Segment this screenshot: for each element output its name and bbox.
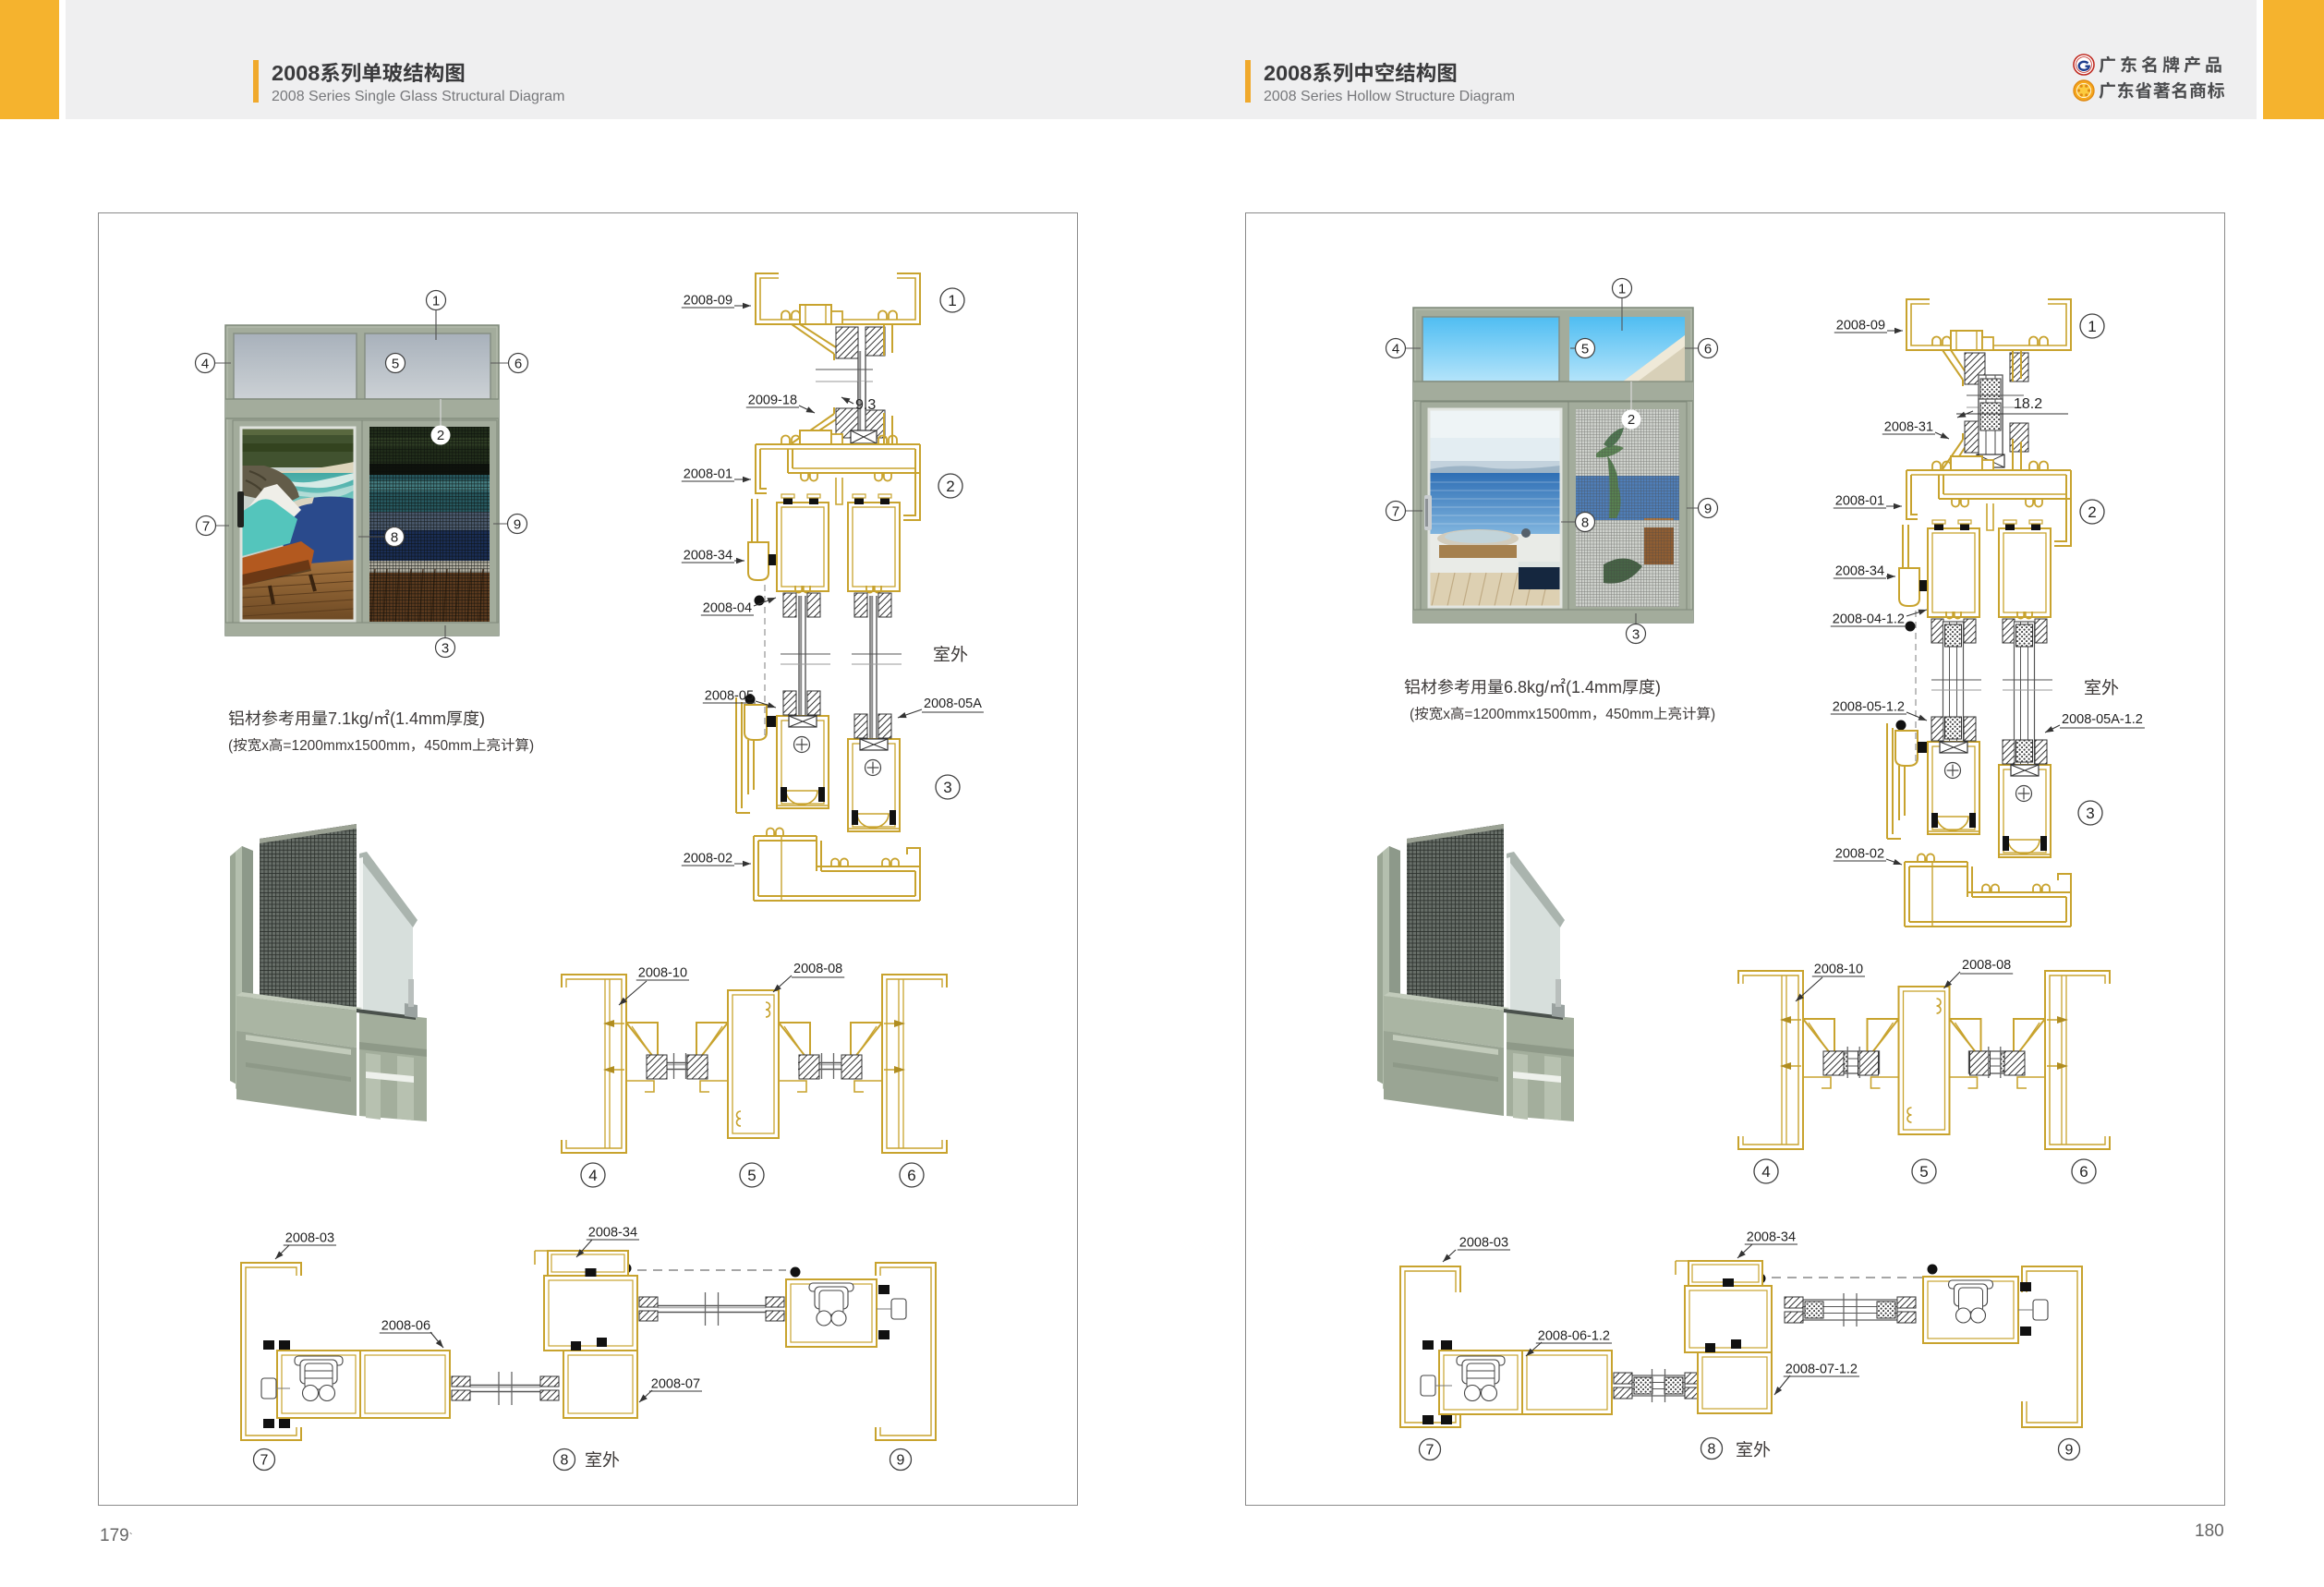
svg-text:): ) (529, 738, 534, 754)
svg-text:6.8kg/: 6.8kg/ (1504, 678, 1549, 697)
svg-text:1: 1 (2088, 318, 2096, 335)
svg-text:2008-34: 2008-34 (684, 549, 732, 563)
svg-text:2008-05-1.2: 2008-05-1.2 (1833, 700, 1905, 715)
svg-text:6: 6 (1704, 341, 1712, 357)
svg-text:450mm: 450mm (424, 738, 472, 754)
svg-text:2008-01: 2008-01 (684, 467, 732, 482)
svg-text:2009-18: 2009-18 (748, 394, 797, 408)
svg-text:2008-02: 2008-02 (1835, 847, 1884, 862)
svg-text:3: 3 (2086, 805, 2094, 822)
svg-text:2008-05: 2008-05 (705, 689, 754, 704)
svg-text:3: 3 (1632, 626, 1640, 642)
svg-text:9: 9 (897, 1453, 905, 1469)
svg-text:2008-10: 2008-10 (638, 966, 687, 981)
svg-text:=1200mmx1500mm: =1200mmx1500mm (1464, 707, 1591, 722)
svg-text:2008: 2008 (272, 61, 320, 85)
svg-text:2: 2 (946, 478, 954, 495)
svg-text:180: 180 (2195, 1521, 2224, 1541)
svg-text:1.4mm: 1.4mm (395, 709, 446, 728)
svg-text:4: 4 (201, 356, 209, 371)
svg-text:=1200mmx1500mm: =1200mmx1500mm (283, 738, 409, 754)
svg-text:2008-09: 2008-09 (1836, 319, 1885, 333)
svg-text:2: 2 (2088, 503, 2096, 521)
svg-text:2008-01: 2008-01 (1835, 494, 1884, 509)
svg-text:): ) (479, 709, 485, 728)
svg-text:): ) (1711, 707, 1715, 722)
svg-text:3: 3 (943, 779, 951, 796)
svg-text:2008-04: 2008-04 (703, 601, 752, 616)
svg-text:6: 6 (2079, 1163, 2088, 1181)
svg-text:7: 7 (1426, 1443, 1434, 1459)
svg-text:2008-07: 2008-07 (651, 1377, 700, 1392)
svg-text:2008-03: 2008-03 (1459, 1236, 1508, 1251)
svg-text:6: 6 (907, 1167, 915, 1184)
svg-text:2008-34: 2008-34 (1835, 564, 1884, 579)
svg-text:(: ( (228, 738, 234, 754)
svg-text:8: 8 (561, 1453, 569, 1469)
svg-text:2008-06-1.2: 2008-06-1.2 (1538, 1329, 1610, 1344)
svg-text:7: 7 (260, 1453, 269, 1469)
svg-text:7.1kg/: 7.1kg/ (328, 709, 373, 728)
svg-text:450mm: 450mm (1605, 707, 1653, 722)
svg-text:7: 7 (202, 518, 210, 534)
svg-text:5: 5 (1581, 341, 1589, 357)
svg-text:2008-08: 2008-08 (1962, 958, 2011, 973)
svg-text:): ) (1655, 678, 1661, 697)
svg-text:5: 5 (1919, 1163, 1928, 1181)
svg-text:1.4mm: 1.4mm (1571, 678, 1622, 697)
svg-text:2008: 2008 (1264, 61, 1312, 85)
svg-text:1: 1 (432, 293, 440, 309)
svg-text:9: 9 (514, 516, 521, 532)
svg-text:(: ( (1410, 707, 1415, 722)
svg-text:4: 4 (1761, 1163, 1770, 1181)
svg-text:2008-31: 2008-31 (1884, 420, 1933, 435)
svg-text:8: 8 (391, 529, 398, 545)
svg-text:2008-05A-1.2: 2008-05A-1.2 (2062, 712, 2143, 727)
svg-text:2008 Series Single Glass Struc: 2008 Series Single Glass Structural Diag… (272, 89, 564, 104)
svg-text:2008-02: 2008-02 (684, 852, 732, 866)
svg-text:2008-06: 2008-06 (381, 1319, 430, 1334)
svg-text:9.3: 9.3 (855, 397, 876, 413)
svg-text:2008 Series Hollow Structure D: 2008 Series Hollow Structure Diagram (1264, 89, 1515, 104)
svg-text:2008-09: 2008-09 (684, 294, 732, 309)
svg-text:2008-34: 2008-34 (588, 1226, 637, 1241)
svg-text:9: 9 (1704, 501, 1712, 516)
svg-text:x: x (1443, 707, 1450, 722)
svg-text:2008-05A: 2008-05A (924, 697, 982, 711)
svg-text:1: 1 (1618, 281, 1626, 297)
svg-text:2008-10: 2008-10 (1814, 963, 1863, 977)
svg-text:5: 5 (392, 356, 399, 371)
svg-text:6: 6 (514, 356, 522, 371)
svg-text:5: 5 (747, 1167, 756, 1184)
svg-text:2: 2 (437, 428, 444, 443)
svg-text:8: 8 (1581, 515, 1589, 530)
svg-text:2008-34: 2008-34 (1747, 1230, 1796, 1245)
svg-text:2008-04-1.2: 2008-04-1.2 (1833, 612, 1905, 627)
svg-text:2008-03: 2008-03 (285, 1231, 334, 1246)
svg-text:7: 7 (1392, 503, 1399, 519)
svg-text:2008-07-1.2: 2008-07-1.2 (1785, 1363, 1858, 1377)
svg-text:4: 4 (1392, 341, 1399, 357)
svg-text:4: 4 (588, 1167, 597, 1184)
svg-text:9: 9 (2065, 1443, 2074, 1459)
svg-text:x: x (261, 738, 269, 754)
svg-text:2: 2 (1628, 412, 1635, 428)
svg-text:18.2: 18.2 (2014, 396, 2042, 412)
svg-text:3: 3 (442, 640, 449, 656)
svg-text:2008-08: 2008-08 (793, 962, 842, 976)
svg-text:8: 8 (1708, 1442, 1716, 1458)
svg-text:179`: 179` (100, 1526, 133, 1545)
svg-text:1: 1 (948, 292, 956, 309)
